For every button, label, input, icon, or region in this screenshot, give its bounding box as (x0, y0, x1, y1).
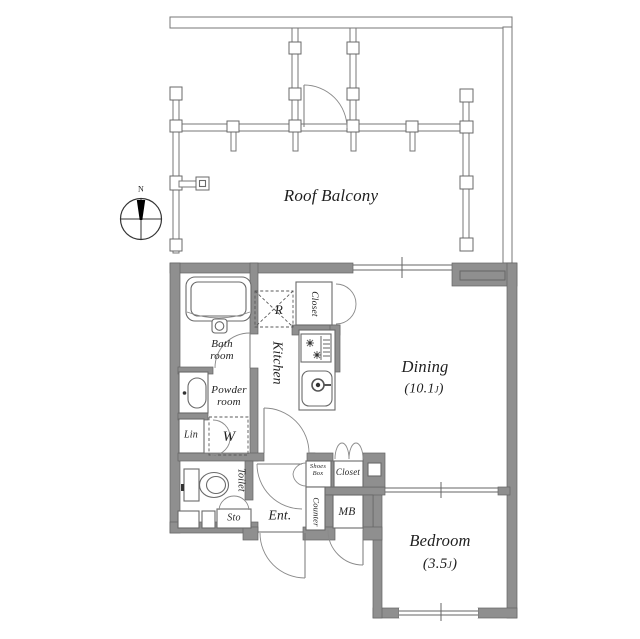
floor-plan: Roof Balcony N Bath room Powder room Lin… (0, 0, 640, 639)
toilet-label: Toilet (235, 468, 246, 492)
kitchen-closet-label: Closet (309, 291, 319, 316)
kitchen-hall-door (264, 408, 309, 453)
balcony-fence-horizontal (171, 124, 470, 131)
hall-entrance-door (257, 464, 302, 509)
entrance-closet-label: Closet (336, 468, 360, 478)
balcony-parapet-top (170, 17, 512, 28)
balcony-fence-left (173, 93, 179, 253)
entrance-door (260, 533, 305, 578)
storage-label: Sto (227, 514, 240, 525)
toilet-icon (181, 469, 229, 501)
bath-drain-icon (212, 319, 227, 333)
burner-icon (313, 351, 321, 359)
dining-bedroom-sliding-door (385, 482, 498, 498)
dining-area-label: (10.1J) (404, 381, 443, 396)
locker-right (202, 511, 215, 528)
fence-posts (170, 42, 473, 251)
entrance-closet-folding-door (335, 443, 363, 459)
washer-label: W (223, 429, 236, 445)
linen-label: Lin (184, 431, 198, 442)
balcony-structure (170, 17, 512, 263)
stove-icon (301, 334, 331, 362)
floor-plan-drawing (0, 0, 640, 639)
vanity-sink-icon (179, 372, 208, 413)
bedroom-label: Bedroom (409, 532, 470, 550)
balcony-faucet-icon (179, 177, 209, 190)
bedroom-area-label: (3.5J) (423, 556, 457, 572)
fence-stubs (231, 131, 415, 151)
balcony-parapet-right (503, 27, 512, 263)
bathtub-icon (186, 277, 251, 321)
shoes-box-label: Shoes Box (310, 463, 326, 477)
kitchen-sink-icon (302, 371, 332, 406)
pipe-shaft (368, 463, 381, 476)
balcony-fence-right (463, 95, 469, 251)
counter-label: Counter (311, 497, 320, 526)
kitchen-closet-double-door (336, 284, 356, 324)
shoes-box-bifold-door (293, 463, 306, 486)
balcony-label: Roof Balcony (284, 187, 378, 205)
locker-left (178, 511, 199, 528)
dining-label: Dining (401, 358, 448, 376)
burner-icon (306, 339, 314, 347)
toilet-bifold-door (219, 496, 249, 510)
balcony-gate-door (304, 85, 347, 128)
refrigerator-label: R (275, 303, 283, 317)
bathroom-label: Bath room (210, 339, 234, 363)
compass-north-label: N (138, 186, 144, 195)
entrance-label: Ent. (269, 509, 292, 524)
compass-icon (120, 198, 162, 240)
kitchen-label: Kitchen (270, 341, 285, 384)
dining-balcony-window (353, 257, 452, 278)
compass-needle-north (137, 200, 145, 220)
powder-room-label: Powder room (211, 385, 246, 409)
bedroom-window (399, 603, 478, 621)
meter-box-label: MB (338, 506, 355, 518)
